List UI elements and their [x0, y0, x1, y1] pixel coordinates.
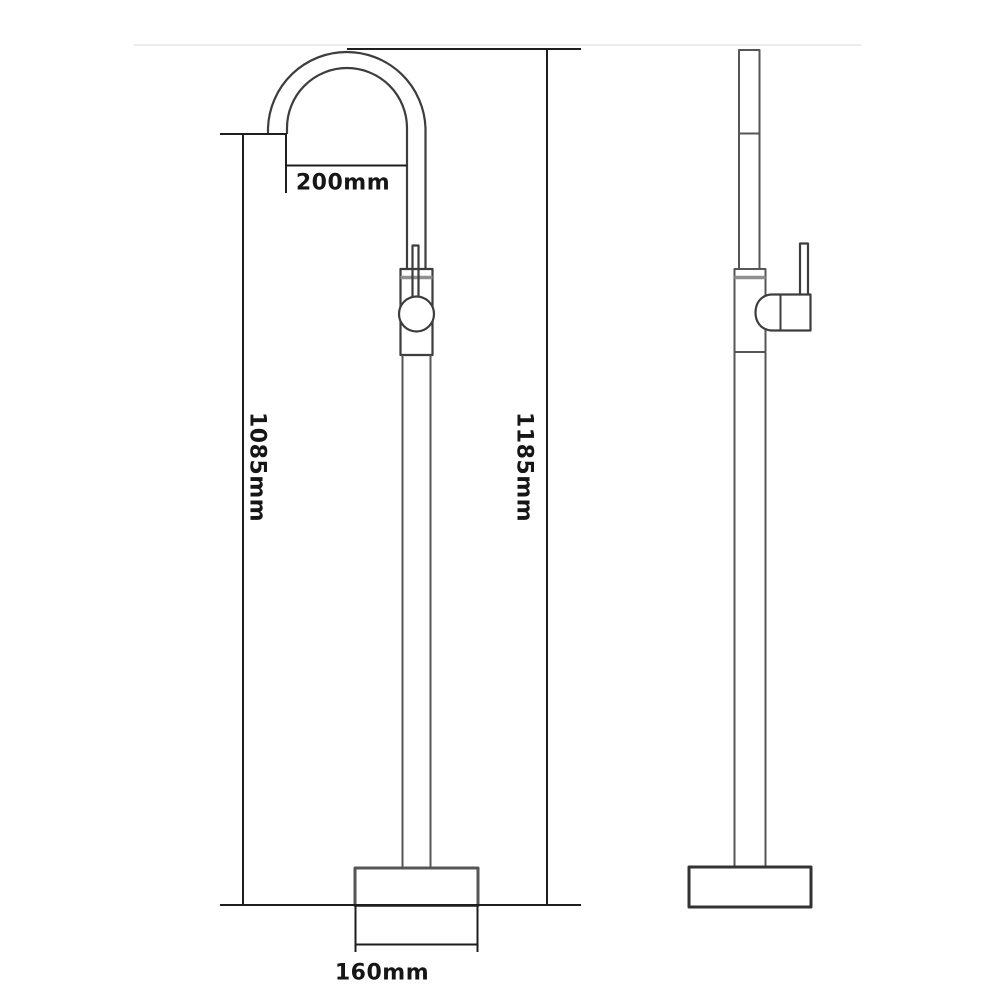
handle-lever — [800, 244, 808, 295]
dim-label-height-to-spout: 1085mm — [245, 412, 270, 522]
gooseneck-inner-curve — [287, 68, 407, 269]
tap-dimension-drawing: 200mm 1085mm 1185mm 160mm — [0, 0, 1000, 1000]
floor-base-front — [355, 868, 478, 906]
spout-side-profile — [739, 50, 760, 269]
floor-base-side — [689, 867, 811, 907]
handle-housing — [756, 295, 811, 331]
body-column-side — [735, 269, 766, 867]
drawing-canvas — [0, 0, 1000, 1000]
dim-label-spout-reach: 200mm — [296, 171, 390, 196]
side-view-drawing — [689, 50, 811, 907]
valve-joint-circle — [399, 297, 434, 332]
dim-label-base-width: 160mm — [335, 961, 429, 986]
dim-label-overall-height: 1185mm — [512, 412, 537, 522]
gooseneck-outer-curve — [268, 52, 426, 269]
